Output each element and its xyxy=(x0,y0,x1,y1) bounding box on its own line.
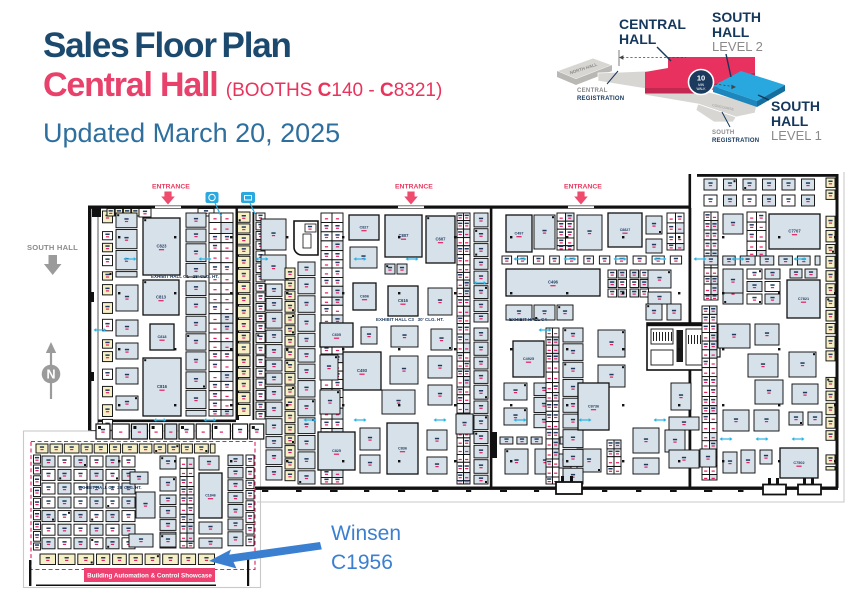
svg-text:LEVEL 2: LEVEL 2 xyxy=(712,39,763,54)
svg-text:C825: C825 xyxy=(332,449,341,453)
svg-text:ENTRANCE: ENTRANCE xyxy=(564,184,602,191)
svg-text:LEVEL 1: LEVEL 1 xyxy=(771,128,822,143)
svg-text:C605: C605 xyxy=(332,333,341,337)
svg-text:C816: C816 xyxy=(157,384,168,389)
svg-text:REGISTRATION: REGISTRATION xyxy=(577,96,624,102)
svg-text:C4925: C4925 xyxy=(523,357,534,361)
svg-text:C496: C496 xyxy=(548,280,559,285)
svg-text:C818: C818 xyxy=(157,335,166,339)
svg-text:EXHIBIT HALL C4: EXHIBIT HALL C4 xyxy=(509,317,547,322)
svg-text:Winsen: Winsen xyxy=(331,522,401,545)
svg-text:C1846: C1846 xyxy=(205,494,216,498)
svg-text:REGISTRATION: REGISTRATION xyxy=(712,138,759,144)
svg-text:SOUTH: SOUTH xyxy=(712,130,735,136)
svg-text:C616: C616 xyxy=(398,298,409,303)
svg-text:EXHIBIT HALL C3 30' CLG. HT.: EXHIBIT HALL C3 30' CLG. HT. xyxy=(376,317,444,322)
svg-text:WALK: WALK xyxy=(697,87,707,91)
svg-text:Building Automation & Control: Building Automation & Control Showcase xyxy=(87,573,212,580)
svg-text:EXHIBIT HALL C1 28' CLG. HT.: EXHIBIT HALL C1 28' CLG. HT. xyxy=(151,274,219,279)
svg-text:C8736: C8736 xyxy=(588,405,599,409)
svg-text:ENTRANCE: ENTRANCE xyxy=(395,184,433,191)
svg-text:C836: C836 xyxy=(398,447,407,451)
svg-text:HALL: HALL xyxy=(712,24,750,40)
svg-text:C607: C607 xyxy=(435,237,446,242)
svg-text:C7707: C7707 xyxy=(788,229,801,234)
svg-text:C7502: C7502 xyxy=(793,461,804,465)
svg-text:C813: C813 xyxy=(156,295,167,300)
svg-text:SOUTH: SOUTH xyxy=(771,98,820,114)
svg-text:N: N xyxy=(46,368,55,382)
svg-text:CENTRAL: CENTRAL xyxy=(619,16,686,32)
svg-text:HALL: HALL xyxy=(619,31,657,47)
svg-text:C606: C606 xyxy=(360,295,369,299)
svg-text:EXHIBIT HALL C2 28' CLG. HT.: EXHIBIT HALL C2 28' CLG. HT. xyxy=(78,485,141,490)
svg-text:ENTRANCE: ENTRANCE xyxy=(152,184,190,191)
svg-text:SOUTH: SOUTH xyxy=(712,9,761,25)
svg-text:C497: C497 xyxy=(514,232,523,236)
svg-text:C493: C493 xyxy=(357,368,368,373)
svg-text:C7821: C7821 xyxy=(798,297,809,301)
svg-text:C823: C823 xyxy=(156,244,167,249)
svg-text:10: 10 xyxy=(697,74,705,83)
svg-text:CENTRAL: CENTRAL xyxy=(577,88,608,94)
svg-text:SOUTH HALL: SOUTH HALL xyxy=(27,243,78,252)
svg-text:HALL: HALL xyxy=(771,113,809,129)
svg-text:C827: C827 xyxy=(359,226,368,230)
svg-text:C1956: C1956 xyxy=(331,551,393,574)
svg-text:C8827: C8827 xyxy=(620,228,631,232)
